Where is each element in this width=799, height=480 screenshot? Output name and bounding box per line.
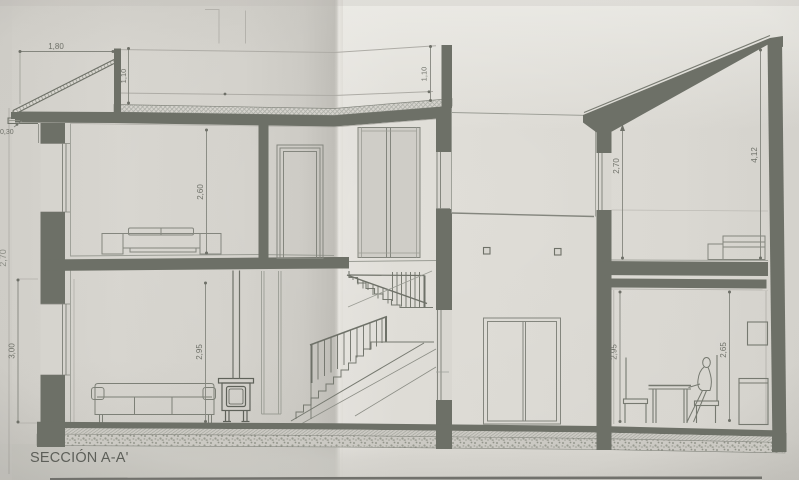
svg-text:SECCIÓN A-A': SECCIÓN A-A': [30, 449, 129, 466]
svg-text:2,95: 2,95: [610, 344, 619, 360]
svg-text:1,80: 1,80: [48, 42, 64, 51]
svg-text:4,12: 4,12: [750, 147, 759, 163]
svg-text:0,30: 0,30: [0, 129, 14, 136]
svg-text:2,65: 2,65: [719, 342, 728, 358]
svg-text:3,00: 3,00: [8, 343, 17, 359]
svg-text:2,70: 2,70: [0, 249, 8, 267]
svg-text:1,10: 1,10: [420, 67, 429, 82]
svg-text:1,10: 1,10: [119, 69, 128, 84]
svg-text:2,70: 2,70: [612, 158, 621, 174]
svg-text:2,60: 2,60: [196, 184, 205, 200]
svg-text:2,95: 2,95: [195, 344, 204, 360]
